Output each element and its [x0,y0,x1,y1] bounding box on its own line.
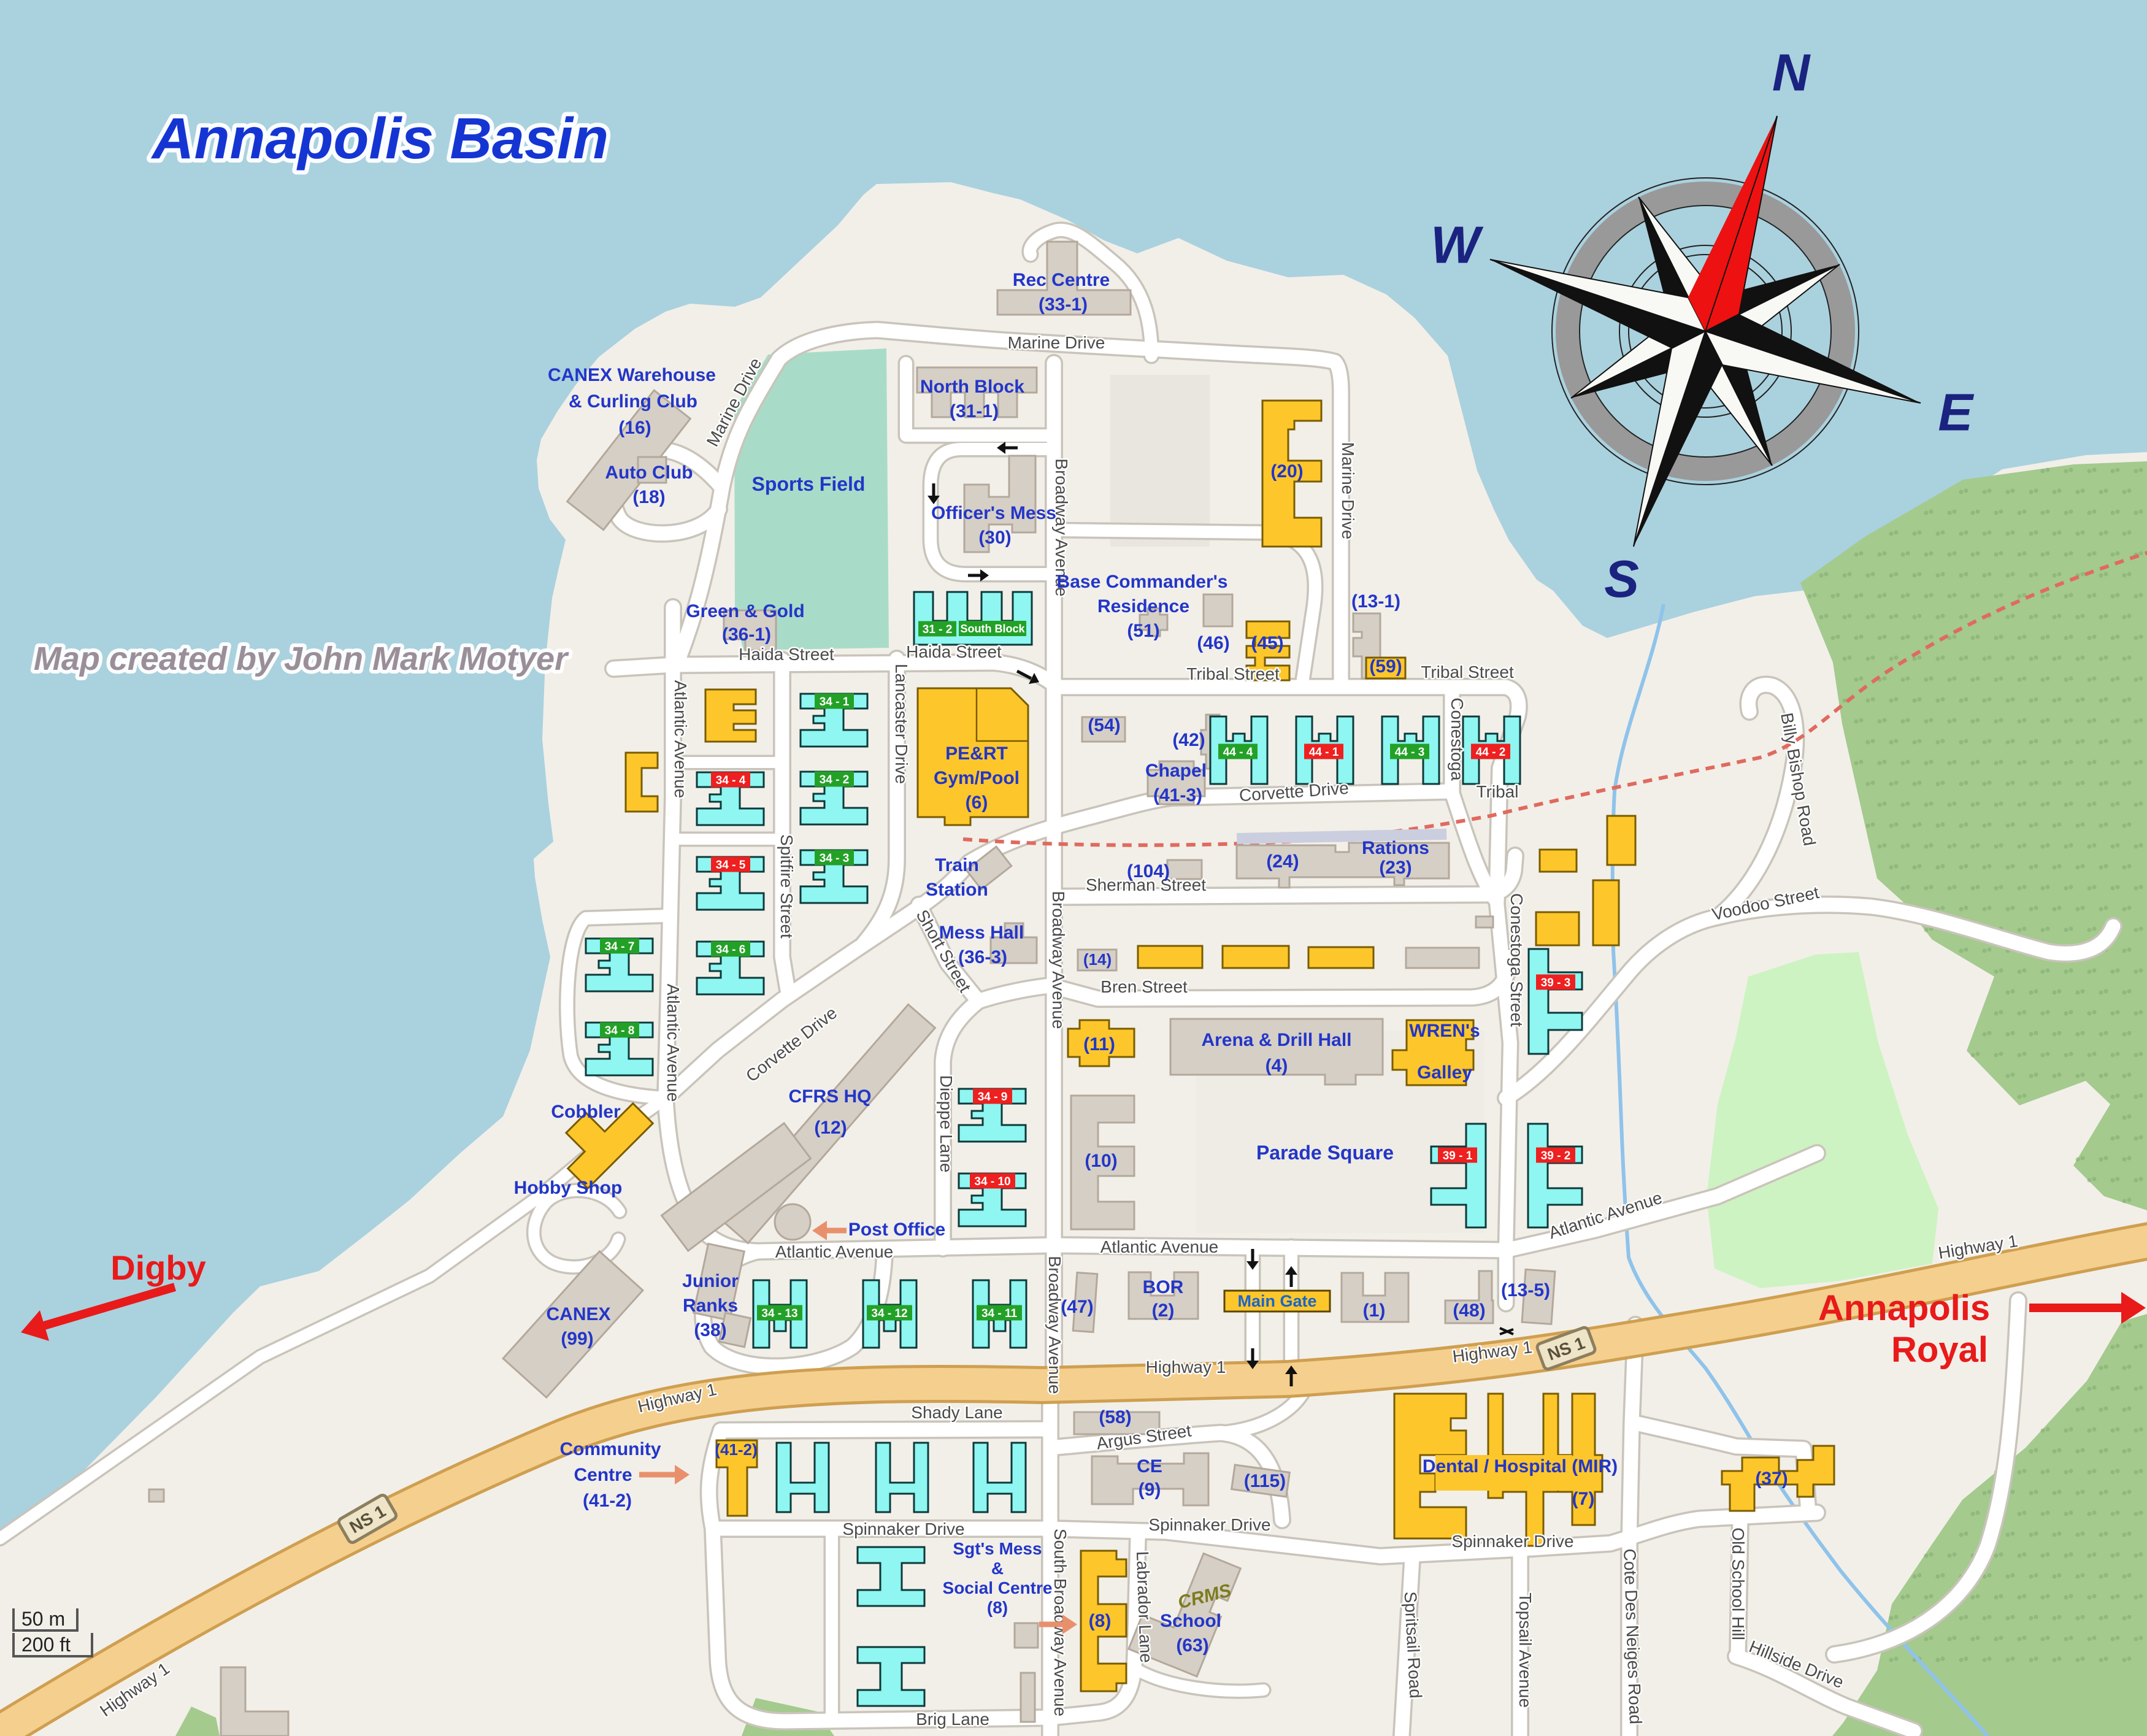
svg-text:(2): (2) [1152,1300,1175,1321]
svg-text:Tribal Street: Tribal Street [1186,664,1280,683]
svg-text:Brig Lane: Brig Lane [916,1710,989,1729]
svg-text:Gym/Pool: Gym/Pool [934,768,1020,788]
svg-text:(23): (23) [1379,858,1411,878]
svg-text:E: E [1938,383,1974,442]
svg-text:Highway 1: Highway 1 [1146,1358,1226,1377]
svg-text:CE: CE [1137,1456,1162,1477]
svg-text:Lancaster Drive: Lancaster Drive [892,664,911,784]
svg-text:(8): (8) [987,1598,1008,1617]
svg-text:Chapel: Chapel [1145,761,1207,781]
svg-text:W: W [1431,217,1484,275]
svg-text:(58): (58) [1099,1407,1131,1427]
svg-text:(18): (18) [632,487,665,507]
svg-text:31 - 2: 31 - 2 [923,623,953,636]
svg-text:Digby: Digby [110,1248,206,1287]
svg-text:BOR: BOR [1143,1277,1184,1297]
svg-text:School: School [1160,1611,1221,1631]
svg-text:Haida Street: Haida Street [739,645,834,664]
svg-text:(63): (63) [1176,1635,1208,1656]
svg-text:(42): (42) [1172,730,1205,750]
svg-text:(12): (12) [814,1118,847,1138]
svg-text:34 - 4: 34 - 4 [716,774,746,787]
svg-text:Map created by John Mark Motye: Map created by John Mark Motyer [34,640,569,677]
svg-text:Rations: Rations [1362,838,1429,858]
svg-text:Station: Station [926,880,988,900]
svg-text:Mess Hall: Mess Hall [939,923,1024,943]
svg-text:Green & Gold: Green & Gold [686,601,804,621]
svg-text:(24): (24) [1266,851,1299,872]
svg-text:50 m: 50 m [21,1608,65,1630]
svg-text:Bren Street: Bren Street [1100,977,1188,996]
svg-text:44 - 1: 44 - 1 [1309,746,1339,759]
svg-text:44 - 3: 44 - 3 [1395,746,1425,759]
svg-text:Atlantic Avenue: Atlantic Avenue [1100,1237,1219,1256]
svg-text:(36-3): (36-3) [958,947,1007,967]
svg-text:(1): (1) [1363,1300,1386,1321]
svg-text:Parade Square: Parade Square [1256,1142,1394,1164]
svg-text:34 - 13: 34 - 13 [761,1307,797,1320]
svg-text:South Block: South Block [960,623,1025,635]
svg-text:Atlantic Avenue: Atlantic Avenue [775,1242,894,1261]
svg-text:Sports Field: Sports Field [752,473,866,495]
svg-text:Tribal Street: Tribal Street [1421,663,1514,682]
svg-text:Sgt's Mess: Sgt's Mess [953,1539,1042,1558]
svg-text:& Curling Club: & Curling Club [569,391,697,412]
svg-text:Spinnaker Drive: Spinnaker Drive [1451,1532,1573,1551]
svg-text:34 - 2: 34 - 2 [820,774,850,786]
svg-text:Spitfire Street: Spitfire Street [777,834,796,939]
svg-text:Marine Drive: Marine Drive [1339,442,1358,540]
svg-text:34 - 6: 34 - 6 [716,943,746,956]
svg-text:Haida Street: Haida Street [906,642,1002,661]
svg-text:(33-1): (33-1) [1039,294,1088,315]
svg-text:(37): (37) [1755,1469,1788,1489]
svg-text:(9): (9) [1139,1480,1161,1500]
svg-text:(48): (48) [1453,1300,1485,1321]
svg-text:44 - 4: 44 - 4 [1223,746,1253,759]
svg-text:CFRS HQ: CFRS HQ [789,1086,872,1107]
svg-text:CANEX Warehouse: CANEX Warehouse [548,365,716,385]
svg-text:Train: Train [935,855,979,875]
svg-text:Galley: Galley [1417,1062,1472,1083]
svg-text:(51): (51) [1127,621,1159,641]
svg-text:&: & [991,1559,1004,1578]
svg-text:Labrador Lane: Labrador Lane [1133,1551,1156,1663]
svg-text:(14): (14) [1083,950,1112,969]
svg-text:Dieppe Lane: Dieppe Lane [937,1075,956,1173]
svg-text:CANEX: CANEX [546,1304,610,1324]
svg-text:N: N [1772,44,1811,102]
svg-text:PE&RT: PE&RT [945,743,1008,764]
svg-text:(10): (10) [1085,1151,1117,1171]
svg-text:(41-2): (41-2) [715,1440,757,1459]
svg-text:Royal: Royal [1891,1330,1988,1370]
svg-text:Old School Hill: Old School Hill [1729,1527,1748,1640]
svg-text:34 - 3: 34 - 3 [820,852,850,865]
svg-text:Spinnaker Drive: Spinnaker Drive [1148,1515,1270,1534]
svg-text:Main Gate: Main Gate [1237,1292,1316,1310]
svg-text:(54): (54) [1088,715,1120,735]
svg-text:Base Commander's: Base Commander's [1057,572,1228,592]
svg-text:Arena & Drill Hall: Arena & Drill Hall [1201,1030,1351,1050]
svg-text:34 - 7: 34 - 7 [605,940,635,953]
svg-text:Dental / Hospital (MIR): Dental / Hospital (MIR) [1423,1456,1618,1477]
svg-text:(45): (45) [1251,633,1283,653]
svg-text:(41-3): (41-3) [1153,785,1202,805]
svg-text:Auto Club: Auto Club [605,463,693,483]
svg-text:Shady Lane: Shady Lane [911,1403,1002,1422]
svg-text:Hobby Shop: Hobby Shop [514,1178,623,1198]
svg-text:200 ft: 200 ft [21,1634,71,1656]
svg-text:Tribal: Tribal [1477,782,1519,801]
svg-text:(20): (20) [1270,461,1303,482]
svg-text:34 - 9: 34 - 9 [978,1091,1008,1104]
svg-text:S: S [1604,550,1639,609]
svg-text:(30): (30) [978,528,1011,548]
svg-text:Rec Centre: Rec Centre [1013,270,1110,290]
svg-text:(104): (104) [1127,861,1170,881]
svg-text:(41-2): (41-2) [583,1491,632,1511]
svg-text:(6): (6) [966,793,988,813]
svg-text:Atlantic Avenue: Atlantic Avenue [664,984,683,1102]
svg-text:(38): (38) [694,1320,726,1340]
svg-text:Ranks: Ranks [683,1296,738,1316]
svg-text:WREN's: WREN's [1409,1021,1480,1041]
svg-text:34 - 5: 34 - 5 [716,859,746,872]
svg-text:39 - 2: 39 - 2 [1541,1150,1571,1162]
svg-text:Conestoga Street: Conestoga Street [1507,893,1526,1027]
svg-text:34 - 12: 34 - 12 [871,1307,907,1320]
svg-text:34 - 10: 34 - 10 [974,1175,1010,1188]
svg-text:Residence: Residence [1097,596,1189,616]
svg-text:Broadway Avenue: Broadway Avenue [1045,1256,1064,1394]
svg-text:Annapolis: Annapolis [1818,1288,1990,1328]
svg-text:Post Office: Post Office [848,1219,945,1240]
svg-text:39 - 1: 39 - 1 [1443,1150,1473,1162]
svg-text:Marine Drive: Marine Drive [1008,333,1105,352]
svg-text:(46): (46) [1197,633,1229,653]
svg-text:Annapolis Basin: Annapolis Basin [151,106,609,171]
svg-text:Spinnaker Drive: Spinnaker Drive [842,1519,964,1538]
svg-text:Cobbler: Cobbler [551,1102,621,1122]
svg-text:(31-1): (31-1) [950,401,999,421]
svg-text:Junior: Junior [682,1271,739,1291]
svg-text:(47): (47) [1061,1297,1093,1317]
svg-text:(7): (7) [1572,1489,1595,1509]
svg-text:Topsail Avenue: Topsail Avenue [1516,1592,1535,1708]
svg-text:(99): (99) [561,1329,593,1349]
svg-text:Social Centre: Social Centre [943,1578,1053,1597]
svg-text:Officer's Mess: Officer's Mess [931,503,1056,523]
svg-text:North Block: North Block [920,377,1024,397]
svg-text:(16): (16) [618,418,651,438]
svg-text:Centre: Centre [574,1465,632,1485]
svg-text:(8): (8) [1089,1611,1112,1631]
svg-text:(36-1): (36-1) [722,624,771,645]
svg-text:34 - 8: 34 - 8 [605,1024,635,1037]
svg-text:Conestoga: Conestoga [1448,697,1467,781]
svg-text:Broadway Avenue: Broadway Avenue [1049,891,1068,1029]
svg-text:(59): (59) [1369,656,1402,677]
svg-text:44 - 2: 44 - 2 [1476,746,1506,759]
svg-text:(13-1): (13-1) [1351,591,1400,612]
svg-text:34 - 11: 34 - 11 [981,1307,1018,1320]
svg-text:34 - 1: 34 - 1 [820,696,850,709]
svg-text:39 - 3: 39 - 3 [1541,977,1571,989]
svg-text:Community: Community [560,1439,661,1459]
svg-text:(115): (115) [1244,1471,1286,1491]
svg-text:(4): (4) [1266,1056,1288,1076]
svg-text:(13-5): (13-5) [1501,1280,1550,1300]
svg-text:Atlantic Avenue: Atlantic Avenue [671,680,690,799]
svg-text:(11): (11) [1083,1034,1115,1054]
